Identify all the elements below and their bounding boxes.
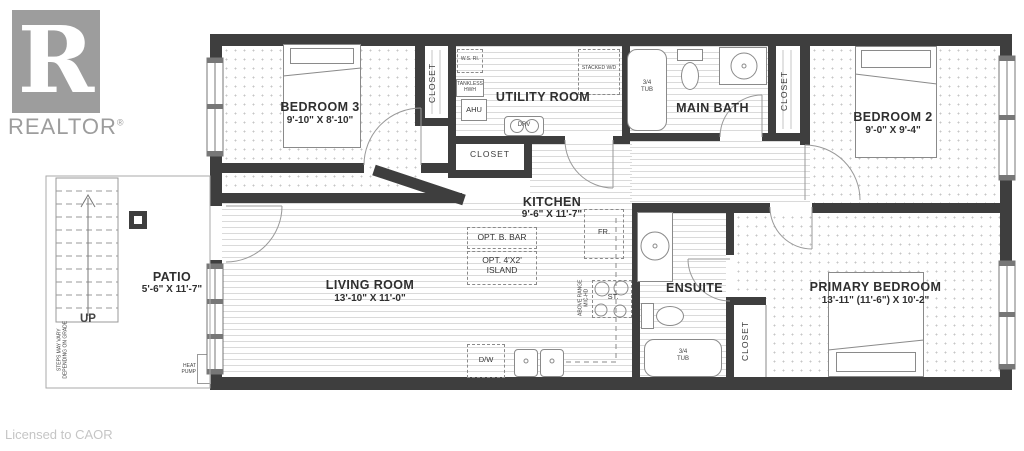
wall-right-3 <box>1000 369 1012 390</box>
primary-name: PRIMARY BEDROOM <box>783 280 968 294</box>
drv-label: DRV <box>504 122 544 129</box>
realtor-logo-icon: R <box>12 10 100 113</box>
pillow-bedroom3 <box>290 48 354 64</box>
dishwasher-label: D/W <box>467 356 505 365</box>
heat-pump-unit <box>197 354 211 384</box>
tub-main-label: 3/4 TUB <box>627 80 667 94</box>
main-bath-name: MAIN BATH <box>650 101 775 115</box>
opt-bar-label: OPT. B. BAR <box>467 233 537 243</box>
closet-bedroom3-label: CLOSET <box>427 52 437 114</box>
closet-hall-label: CLOSET <box>456 150 524 160</box>
closet-bedroom2-label: CLOSET <box>779 54 789 128</box>
wall-right-2 <box>1000 180 1012 261</box>
utility-name: UTILITY ROOM <box>478 90 608 104</box>
toilet-tank-ensuite <box>641 303 654 329</box>
wall-right-1 <box>1000 34 1012 56</box>
heat-pump-label: HEAT PUMP <box>166 364 196 376</box>
ahu-label: AHU <box>461 106 487 115</box>
bedroom2-dims: 9'-0" X 9'-4" <box>823 125 963 137</box>
tub-ensuite-label: 3/4 TUB <box>644 349 722 363</box>
toilet-bowl-main <box>681 62 699 90</box>
stairs <box>56 178 118 322</box>
kitchen-sink-left <box>514 349 538 377</box>
window-bedroom3 <box>207 58 223 156</box>
range-mic-note: ABOVE RANGE MIC-HD <box>578 276 590 320</box>
wall-left-1 <box>210 34 222 60</box>
registered-mark: ® <box>117 118 125 128</box>
closet-primary-label: CLOSET <box>740 310 750 372</box>
stacked-wd-label: STACKED W/D <box>578 66 620 72</box>
wall-primary-top-b <box>812 203 1000 213</box>
wall-left-3 <box>210 260 222 266</box>
wall-left-2 <box>210 156 222 206</box>
vanity-ensuite <box>637 212 673 282</box>
wall-ensuite-right-b <box>726 297 734 377</box>
toilet-bowl-ensuite <box>656 306 684 326</box>
wall-bedroom3-closet <box>415 46 425 118</box>
bedroom3-name: BEDROOM 3 <box>250 100 390 114</box>
patio-name: PATIO <box>132 270 212 284</box>
primary-dims: 13'-11" (11'-6") X 10'-2" <box>783 295 968 307</box>
wall-closet2-bedroom2 <box>800 46 810 145</box>
vanity-main-bath <box>719 47 767 85</box>
wall-hallcloset-bottom <box>448 170 532 178</box>
wall-bottom <box>210 377 1012 390</box>
wall-left-4 <box>210 372 222 390</box>
stairs-up-label: UP <box>75 313 101 326</box>
floor-plan-page: R REALTOR® Licensed to CAOR <box>0 0 1024 451</box>
window-primary <box>999 261 1015 369</box>
living-dims: 13'-10" X 11'-0" <box>300 293 440 305</box>
bedroom3-dims: 9'-10" X 8'-10" <box>250 115 390 127</box>
ws-ri-label: W.S. RI. <box>457 57 483 63</box>
steps-note: STEPS MAY VARY DEPENDING ON GRADE <box>57 310 69 390</box>
wall-closet-utility <box>448 46 456 178</box>
bedroom2-name: BEDROOM 2 <box>823 110 963 124</box>
toilet-tank-main <box>677 49 703 61</box>
realtor-logo-letter: R <box>18 14 94 106</box>
wall-bath-closet2 <box>768 46 776 141</box>
license-note: Licensed to CAOR <box>5 427 113 442</box>
living-name: LIVING ROOM <box>300 278 440 292</box>
stacked-washer-dryer <box>578 49 620 95</box>
wall-bath-bottom-a <box>622 133 720 141</box>
hall-floor-b <box>630 141 810 203</box>
realtor-wordmark: REALTOR® <box>8 114 128 140</box>
pillow-bedroom2 <box>861 50 931 68</box>
patio-dims: 5'-6" X 11'-7" <box>124 284 220 296</box>
pillow-primary <box>836 352 916 372</box>
kitchen-name: KITCHEN <box>492 195 612 209</box>
wall-utility-bottom-a <box>448 136 565 144</box>
wall-living-top <box>222 193 462 203</box>
wall-pcloset-top <box>726 297 766 305</box>
kitchen-sink-right <box>540 349 564 377</box>
stairs-up-arrow-icon <box>81 195 95 316</box>
wall-bedroom3-bottom <box>222 163 364 173</box>
ensuite-name: ENSUITE <box>642 281 747 295</box>
closet-primary <box>734 305 766 377</box>
opt-island-label: OPT. 4'X2' ISLAND <box>467 256 537 276</box>
wall-bedroom3-bottom-stub <box>421 163 448 173</box>
wall-primary-top-a <box>726 203 770 213</box>
stove-label: ST. <box>598 293 628 302</box>
wall-ensuite-right-a <box>726 213 734 255</box>
kitchen-dims: 9'-6" X 11'-7" <box>492 209 612 221</box>
window-bedroom2 <box>999 56 1015 180</box>
patio-column <box>129 211 147 229</box>
fridge-label: FR. <box>584 228 624 237</box>
